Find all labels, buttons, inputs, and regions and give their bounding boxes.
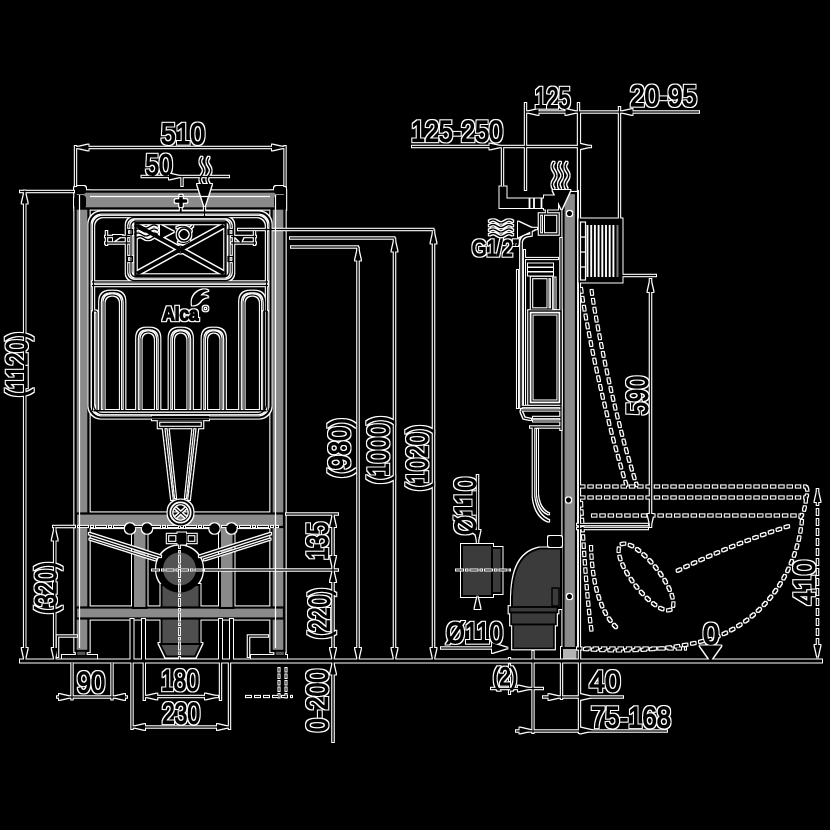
svg-text:0-200: 0-200 (302, 669, 335, 732)
svg-text:(320): (320) (30, 562, 63, 614)
svg-text:510: 510 (161, 118, 205, 151)
svg-text:G1/2”: G1/2” (472, 235, 519, 261)
svg-text:20-95: 20-95 (630, 80, 697, 113)
svg-text:135: 135 (302, 522, 335, 560)
svg-text:125: 125 (535, 82, 571, 115)
svg-text:Alca: Alca (163, 304, 199, 326)
svg-text:40: 40 (590, 666, 621, 699)
svg-text:(1120): (1120) (1, 332, 34, 397)
svg-text:90: 90 (77, 667, 105, 700)
svg-text:180: 180 (161, 665, 199, 698)
svg-text:(220): (220) (304, 588, 337, 639)
svg-text:410: 410 (789, 560, 822, 605)
svg-text:(2): (2) (493, 663, 517, 691)
svg-text:(980): (980) (324, 418, 357, 478)
svg-text:50: 50 (146, 149, 173, 182)
svg-text:125-250: 125-250 (411, 116, 503, 149)
svg-text:(1000): (1000) (363, 416, 396, 484)
svg-text:(1020): (1020) (402, 425, 435, 491)
svg-text:590: 590 (622, 376, 655, 415)
svg-text:230: 230 (162, 698, 200, 731)
svg-text:75-168: 75-168 (591, 702, 671, 735)
